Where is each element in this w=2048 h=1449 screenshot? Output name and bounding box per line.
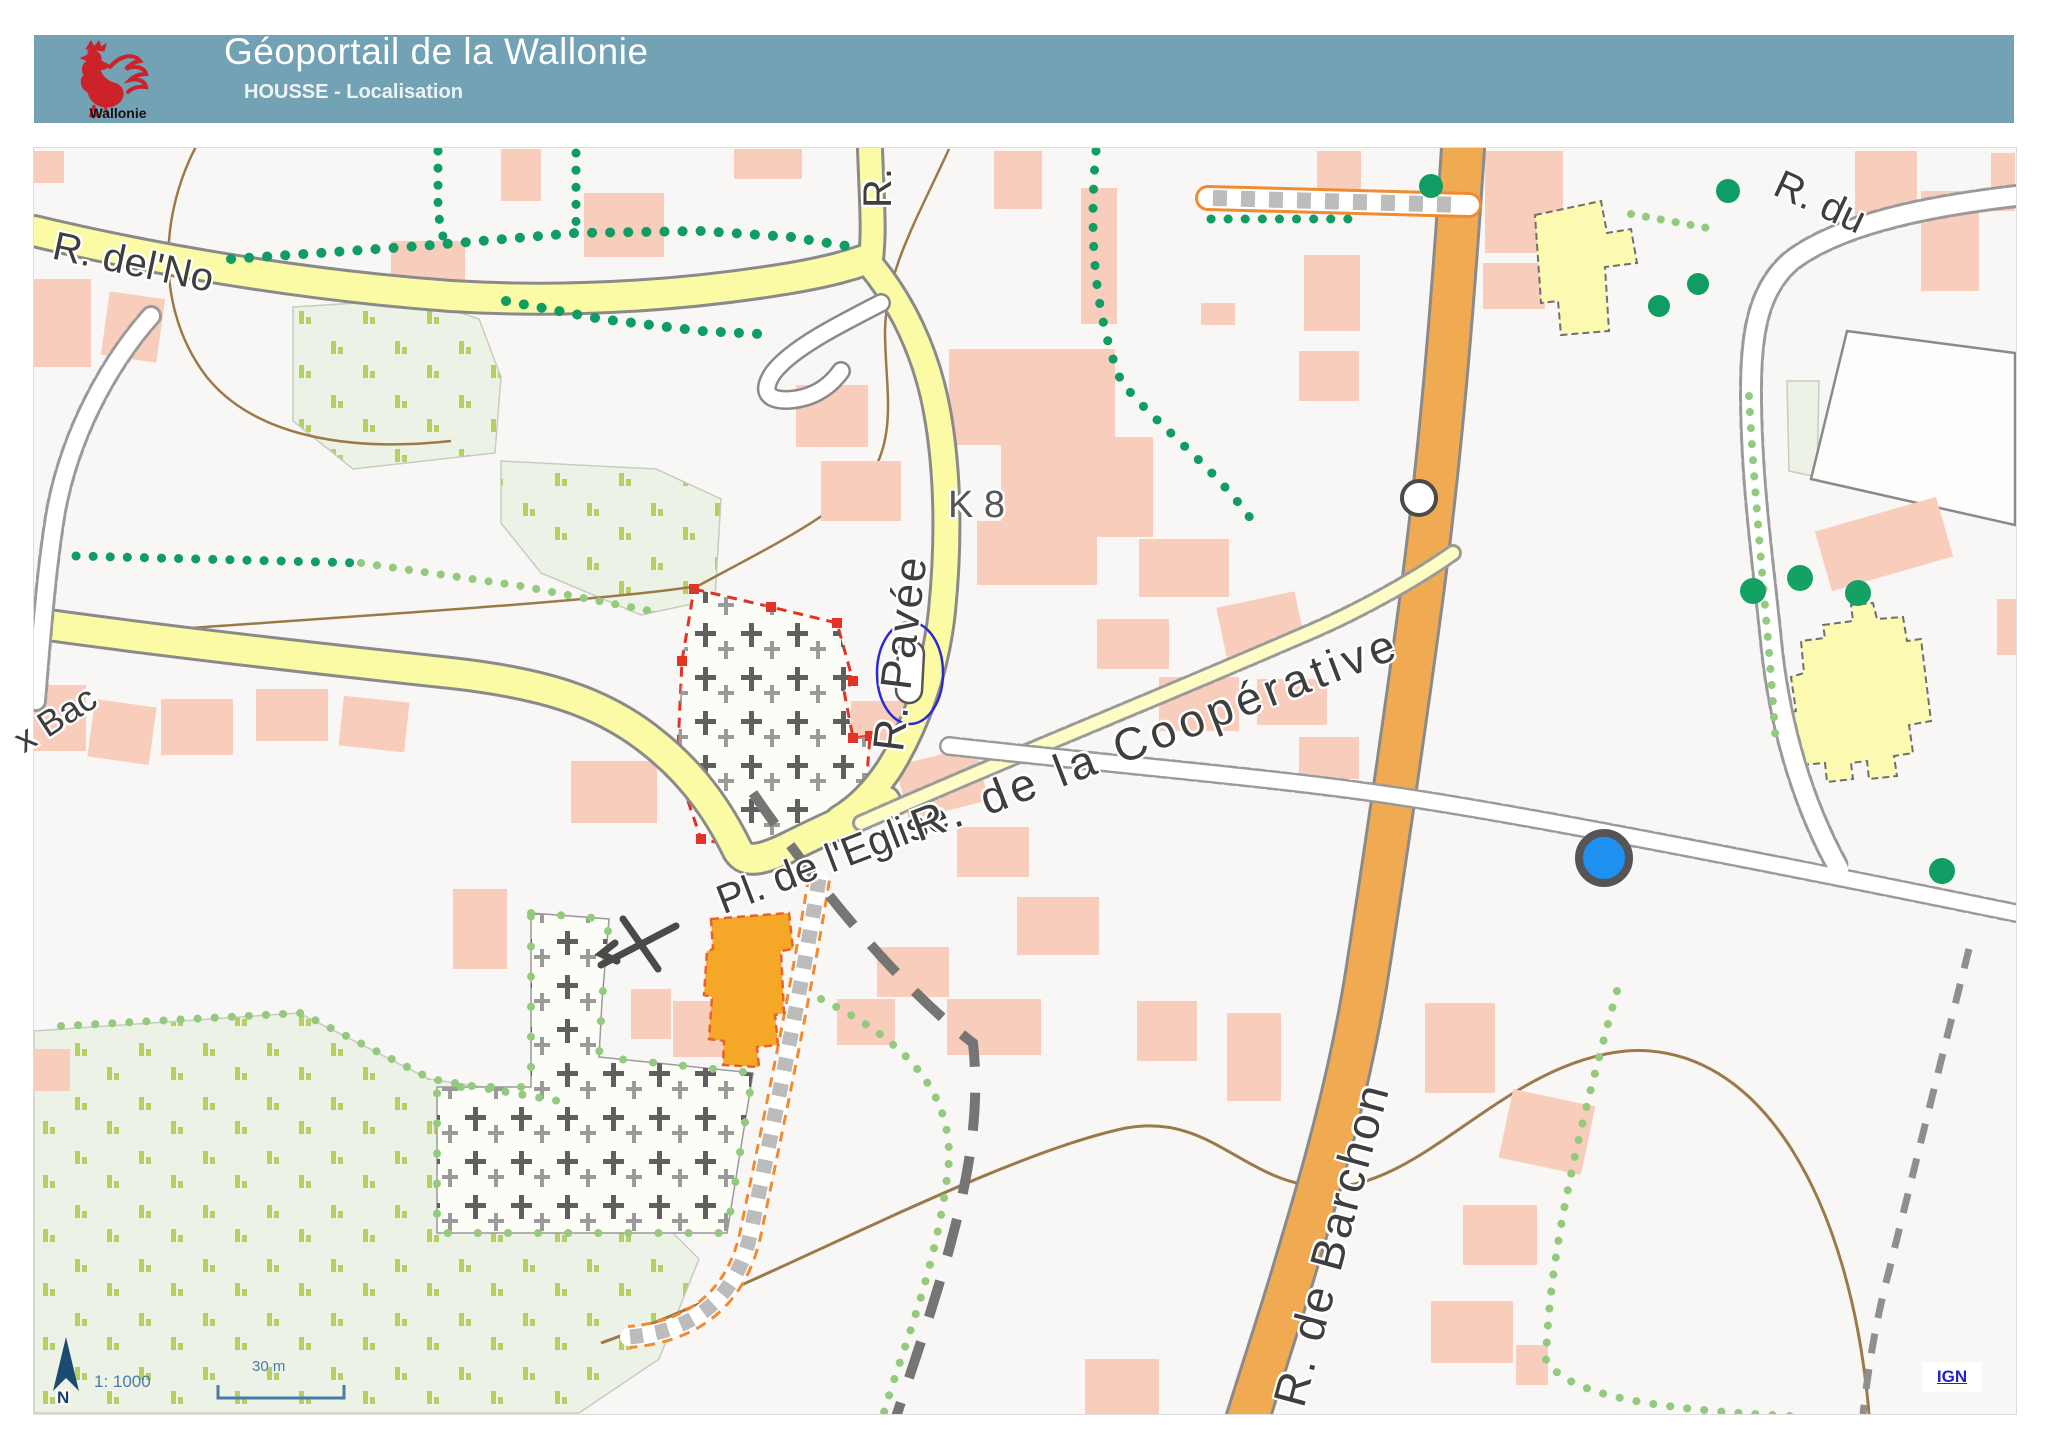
- scale-ratio: 1: 1000: [94, 1372, 151, 1392]
- header-band: Wallonie Géoportail de la Wallonie HOUSS…: [34, 35, 2014, 123]
- scale-distance: 30 m: [252, 1358, 285, 1375]
- logo-caption: Wallonie: [70, 105, 166, 121]
- ign-link[interactable]: IGN: [1937, 1367, 1967, 1386]
- label-k8: K 8: [948, 484, 1005, 527]
- page-subtitle: HOUSSE - Localisation: [244, 81, 463, 104]
- white-circle-marker[interactable]: [1402, 481, 1436, 515]
- blue-dot-marker[interactable]: [1579, 833, 1629, 883]
- wallonie-rooster-logo-icon: Wallonie: [48, 37, 158, 123]
- page-title: Géoportail de la Wallonie: [224, 31, 649, 73]
- north-label: N: [57, 1388, 69, 1408]
- geoportail-window: Wallonie Géoportail de la Wallonie HOUSS…: [0, 0, 2048, 1449]
- attribution-box: IGN: [1922, 1362, 1982, 1392]
- street-label-r: R.: [856, 168, 901, 208]
